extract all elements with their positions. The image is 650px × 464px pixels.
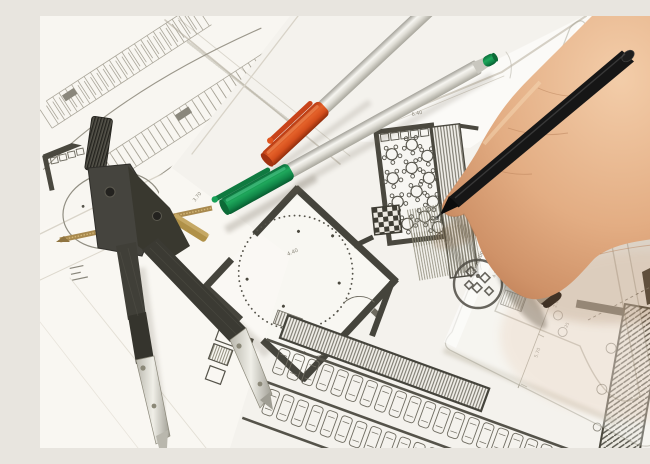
compass-screw — [153, 212, 162, 221]
compass-screw — [105, 187, 115, 197]
ink-touch-point — [435, 216, 439, 220]
desk-photo: Close-up photograph of a right hand draw… — [40, 16, 650, 448]
scene-photo: Architect drawing on floor plans — [40, 16, 650, 448]
